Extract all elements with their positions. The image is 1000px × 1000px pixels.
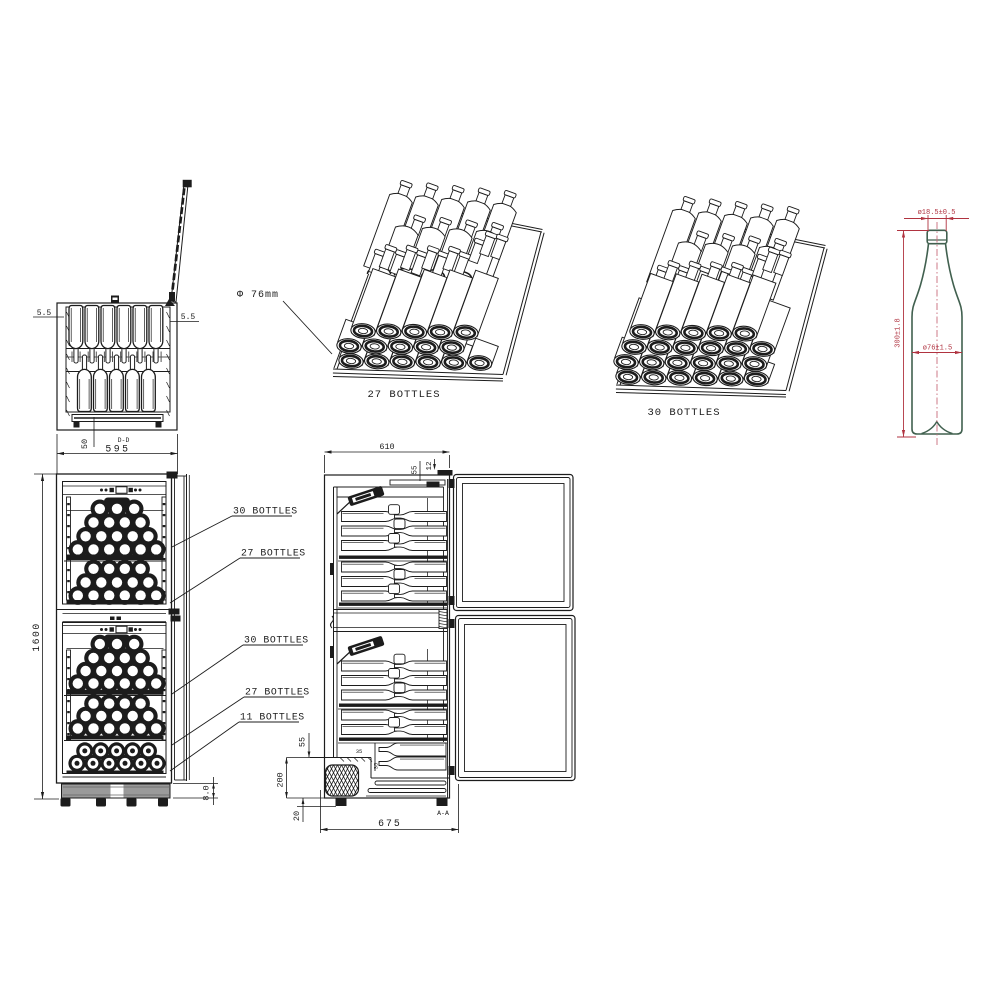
svg-text:27 BOTTLES: 27 BOTTLES: [241, 548, 306, 559]
svg-text:50: 50: [80, 439, 90, 449]
svg-text:Φ 76mm: Φ 76mm: [237, 290, 279, 301]
svg-text:30 BOTTLES: 30 BOTTLES: [647, 407, 720, 419]
svg-text:200: 200: [276, 772, 286, 787]
svg-text:5.5: 5.5: [181, 313, 196, 322]
svg-text:A-A: A-A: [437, 810, 449, 817]
svg-text:30 BOTTLES: 30 BOTTLES: [233, 506, 298, 517]
svg-text:20: 20: [292, 811, 302, 821]
svg-text:27 BOTTLES: 27 BOTTLES: [367, 389, 440, 401]
svg-text:30 BOTTLES: 30 BOTTLES: [244, 635, 309, 646]
svg-text:8.0: 8.0: [202, 785, 212, 800]
svg-text:1600: 1600: [31, 622, 42, 652]
svg-text:35: 35: [356, 748, 363, 755]
svg-text:610: 610: [379, 442, 394, 452]
svg-text:ø18.5±0.5: ø18.5±0.5: [918, 209, 956, 217]
svg-text:ø76±1.5: ø76±1.5: [923, 345, 952, 353]
svg-text:300±1.8: 300±1.8: [895, 318, 903, 347]
svg-text:55: 55: [298, 737, 308, 747]
svg-text:675: 675: [378, 818, 402, 829]
svg-text:55: 55: [412, 465, 420, 475]
svg-text:11 BOTTLES: 11 BOTTLES: [240, 712, 305, 723]
svg-text:12: 12: [426, 461, 434, 470]
svg-text:27 BOTTLES: 27 BOTTLES: [245, 687, 310, 698]
svg-text:35: 35: [373, 763, 380, 770]
svg-text:595: 595: [105, 444, 130, 455]
